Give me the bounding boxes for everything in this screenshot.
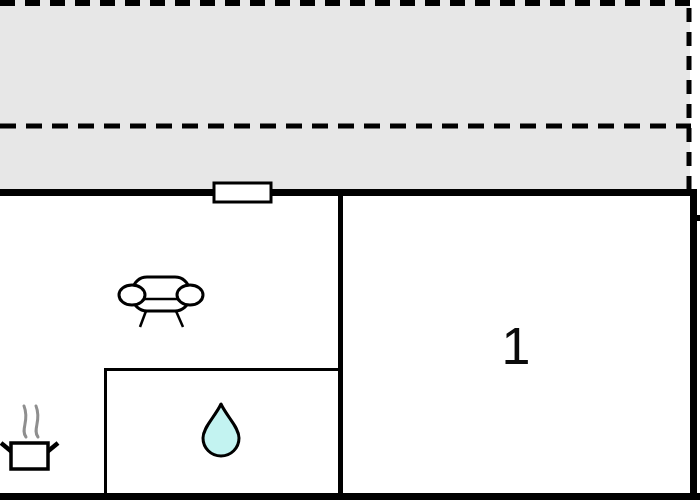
water-drop-icon: [203, 404, 239, 456]
terrace-area: [0, 0, 690, 192]
exterior-wall-right: [690, 189, 697, 500]
sofa-arm-right: [177, 285, 203, 305]
sofa-leg-left: [140, 311, 146, 327]
sofa-icon: [119, 277, 203, 327]
bathroom-wall-left: [104, 368, 107, 495]
interior-wall-vertical: [338, 193, 343, 500]
sofa-arm-left: [119, 285, 145, 305]
floorplan-page: 1: [0, 0, 700, 500]
window-symbol: [214, 183, 271, 202]
steam-line-right: [36, 406, 38, 437]
pot-body: [11, 443, 48, 469]
bathroom-wall-top: [104, 368, 340, 371]
sofa-leg-right: [176, 311, 183, 327]
cooking-pot-icon: [1, 406, 58, 469]
floorplan-canvas: 1: [0, 0, 700, 500]
steam-line-left: [24, 406, 26, 437]
exterior-wall-top: [0, 189, 697, 196]
room-1-label: 1: [502, 317, 531, 375]
